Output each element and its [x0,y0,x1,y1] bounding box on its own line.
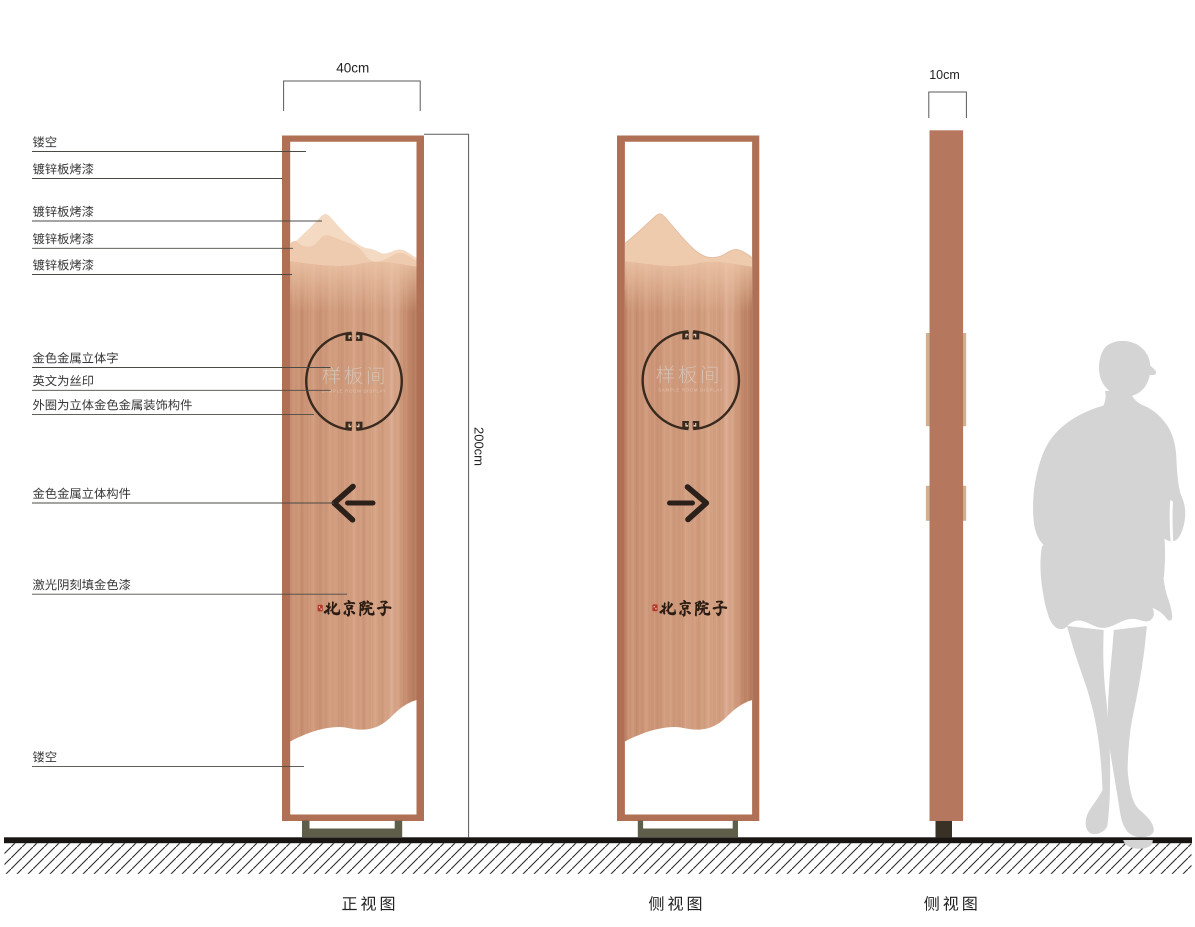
svg-text:10cm: 10cm [929,68,960,82]
svg-text:40cm: 40cm [336,61,369,76]
svg-text:SAMPLE ROOM DISPLAY: SAMPLE ROOM DISPLAY [322,389,387,394]
svg-text:200cm: 200cm [472,427,487,466]
svg-text:SAMPLE ROOM DISPLAY: SAMPLE ROOM DISPLAY [658,388,723,393]
